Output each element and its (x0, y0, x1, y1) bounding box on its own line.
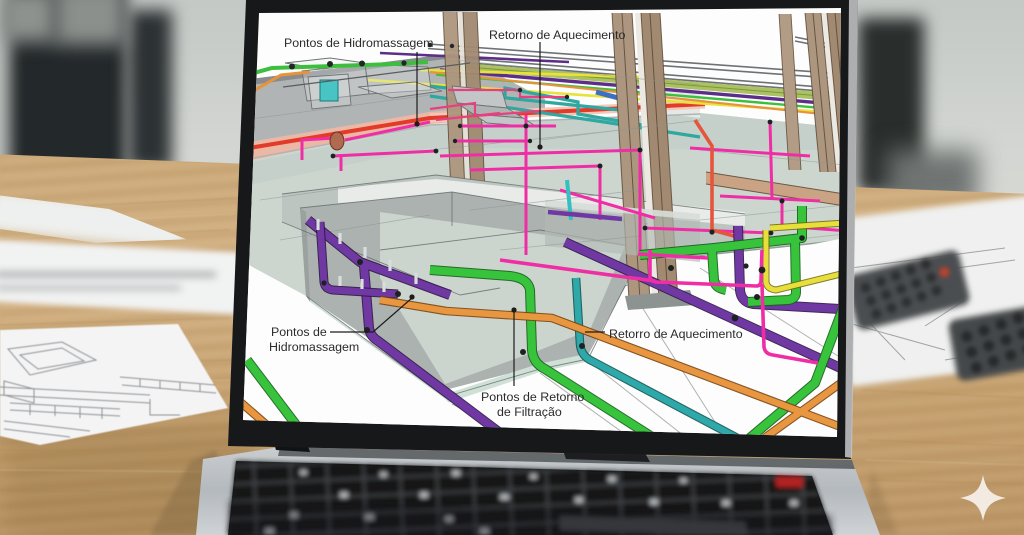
svg-text:Pontos de Retorno: Pontos de Retorno (481, 390, 584, 404)
svg-text:Retorro de Aquecimento: Retorro de Aquecimento (609, 327, 743, 341)
svg-text:Hidromassagem: Hidromassagem (269, 340, 359, 354)
svg-text:Pontos de: Pontos de (271, 325, 327, 339)
svg-text:Retorno de Aquecimento: Retorno de Aquecimento (489, 28, 625, 42)
svg-text:Pontos de Hidromassagem: Pontos de Hidromassagem (284, 36, 433, 50)
svg-text:de Filtração: de Filtração (497, 405, 562, 419)
